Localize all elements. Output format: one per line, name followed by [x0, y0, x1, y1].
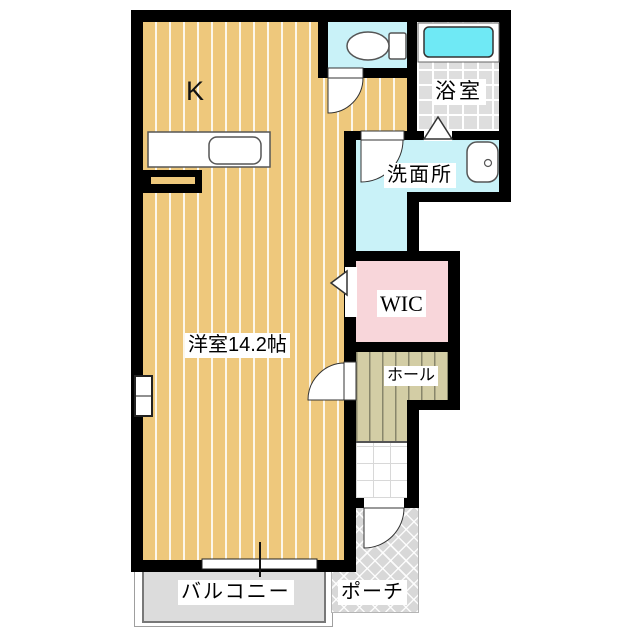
toilet-swing-door [328, 78, 363, 113]
toilet-door-leaf [328, 68, 363, 78]
label-hall: ホール [384, 366, 438, 386]
bathtub [424, 27, 493, 57]
label-wic: WIC [377, 290, 426, 317]
entrance-swing-door [364, 508, 404, 548]
toilet-tank [389, 33, 406, 59]
fixtures-layer [0, 0, 640, 640]
label-living-room: 洋室14.2帖 [185, 333, 290, 358]
label-bathroom: 浴室 [432, 79, 486, 105]
washbasin [467, 142, 498, 182]
washbasin-drain [485, 160, 492, 167]
label-washroom: 洗面所 [384, 163, 456, 188]
kitchen-sink [209, 137, 261, 164]
floor-plan: K 洋室14.2帖 浴室 洗面所 WIC ホール バルコニー ポーチ [0, 0, 640, 640]
hall-door-leaf [344, 362, 356, 400]
washroom-door-leaf [361, 131, 404, 140]
hall-swing-door [308, 363, 345, 400]
bathroom-folding-door [424, 117, 452, 139]
wic-folding-door [331, 271, 347, 295]
label-balcony: バルコニー [178, 580, 294, 605]
label-porch: ポーチ [338, 580, 407, 605]
label-kitchen: K [186, 76, 204, 107]
entrance-door-opening [364, 498, 404, 508]
toilet-bowl [347, 32, 389, 60]
